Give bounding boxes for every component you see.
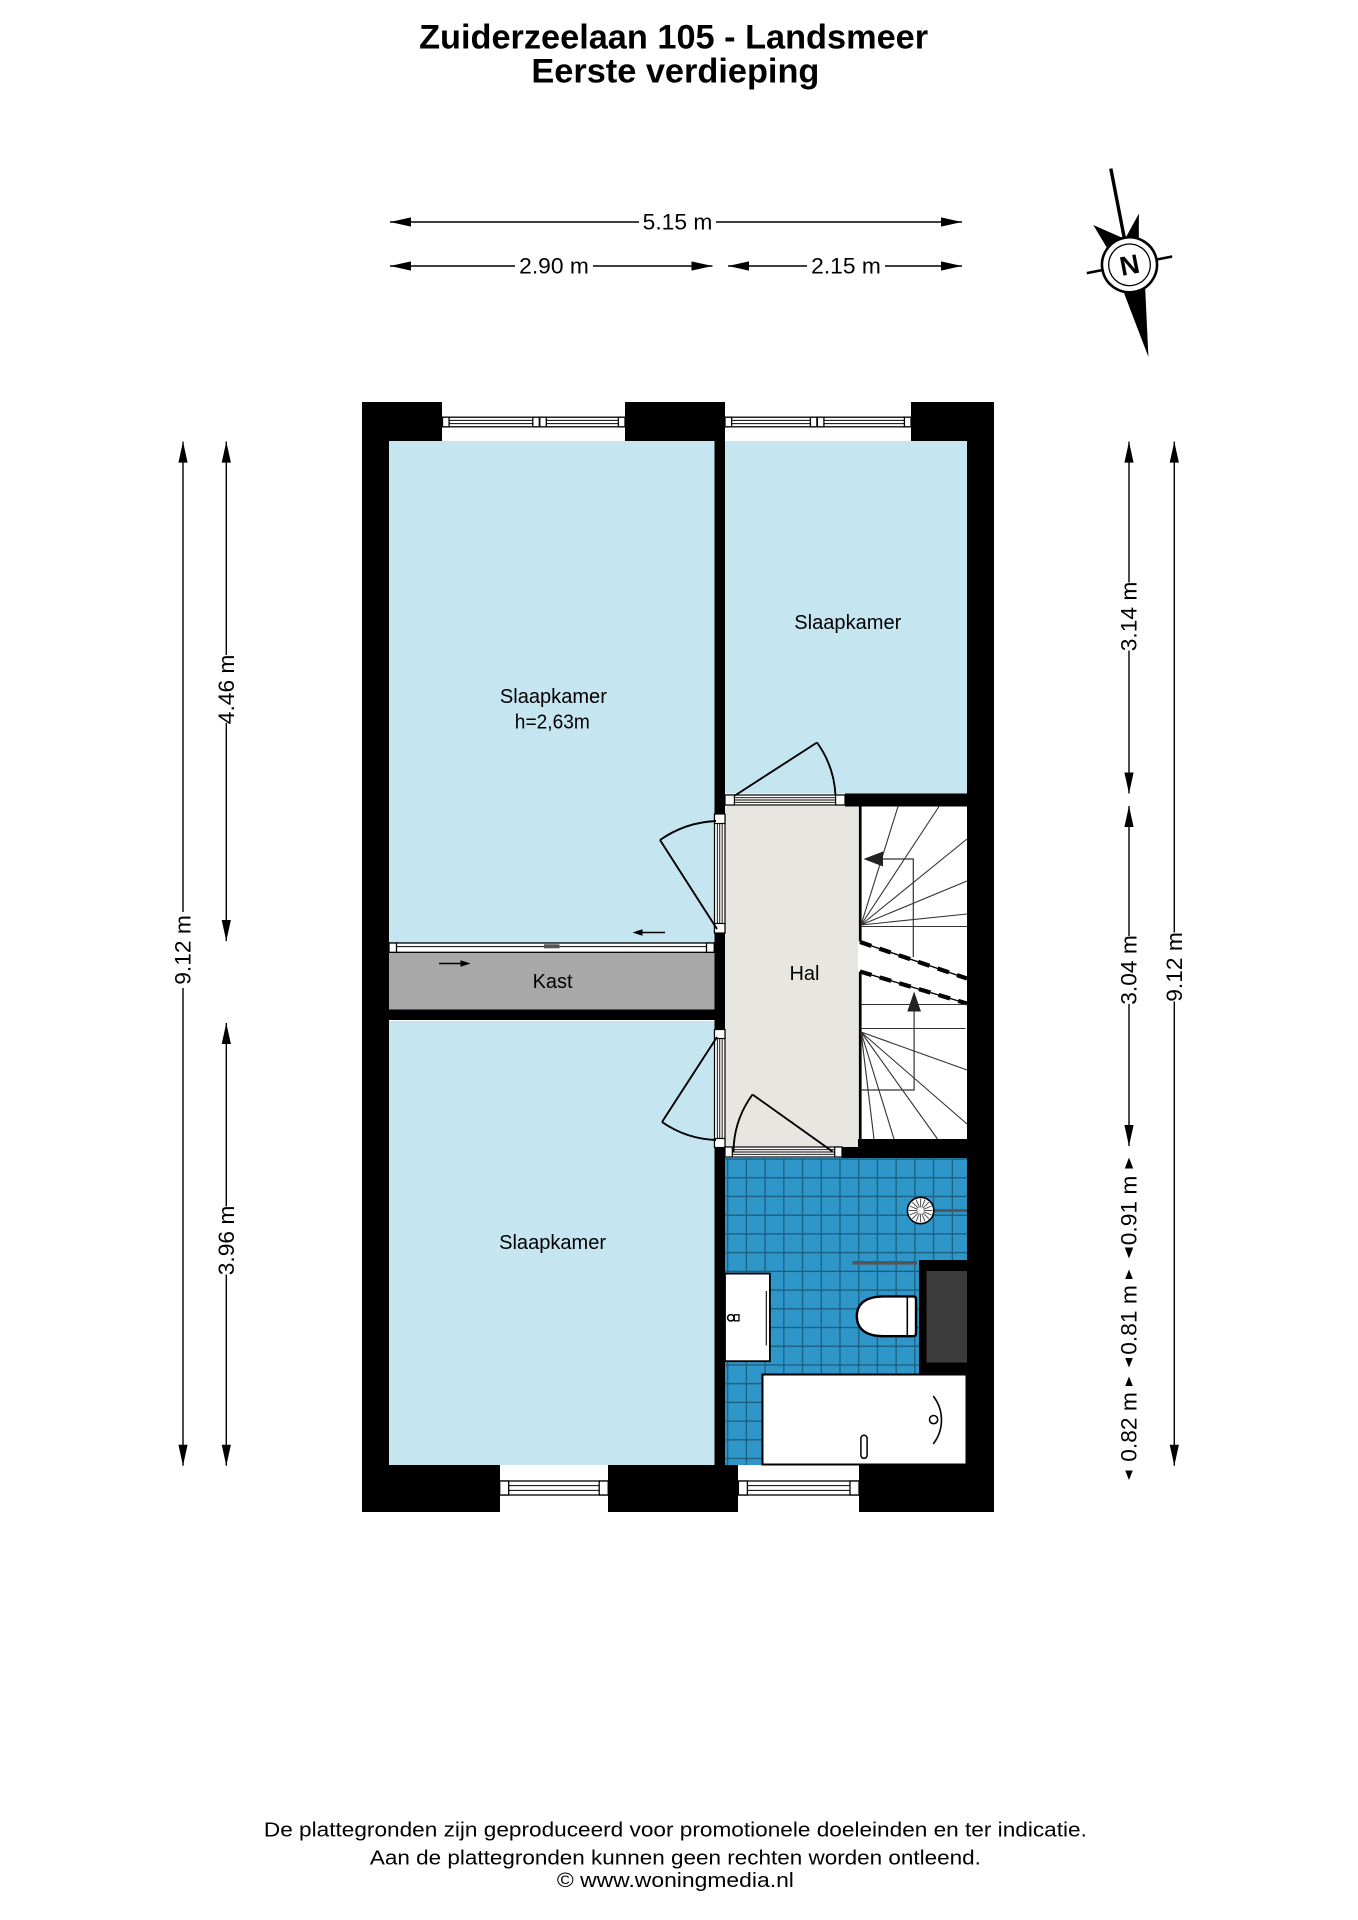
svg-text:5.15 m: 5.15 m [643, 210, 713, 235]
svg-text:4.46 m: 4.46 m [214, 655, 239, 725]
svg-text:3.96 m: 3.96 m [214, 1206, 239, 1276]
svg-text:3.04 m: 3.04 m [1117, 935, 1142, 1005]
svg-text:9.12 m: 9.12 m [1162, 932, 1187, 1002]
svg-text:Slaapkamer: Slaapkamer [499, 1232, 606, 1254]
svg-text:h=2,63m: h=2,63m [515, 711, 590, 733]
svg-text:0.82 m: 0.82 m [1117, 1392, 1142, 1462]
svg-text:2.90 m: 2.90 m [519, 254, 589, 279]
svg-text:9.12 m: 9.12 m [171, 915, 196, 985]
svg-text:Aan de plattegronden kunnen ge: Aan de plattegronden kunnen geen rechten… [370, 1847, 981, 1870]
svg-text:De plattegronden zijn geproduc: De plattegronden zijn geproduceerd voor … [264, 1819, 1087, 1842]
svg-text:© www.woningmedia.nl: © www.woningmedia.nl [557, 1869, 794, 1892]
svg-text:Kast: Kast [533, 971, 573, 993]
svg-text:Slaapkamer: Slaapkamer [794, 612, 901, 634]
svg-text:Zuiderzeelaan 105 - Landsmeer: Zuiderzeelaan 105 - Landsmeer [419, 18, 928, 56]
svg-text:Hal: Hal [790, 963, 820, 985]
svg-text:2.15 m: 2.15 m [811, 254, 881, 279]
svg-text:Eerste verdieping: Eerste verdieping [531, 52, 819, 90]
svg-text:0.91 m: 0.91 m [1117, 1176, 1142, 1246]
svg-text:3.14 m: 3.14 m [1117, 582, 1142, 652]
svg-text:Slaapkamer: Slaapkamer [500, 686, 607, 708]
svg-text:0.81 m: 0.81 m [1117, 1285, 1142, 1355]
